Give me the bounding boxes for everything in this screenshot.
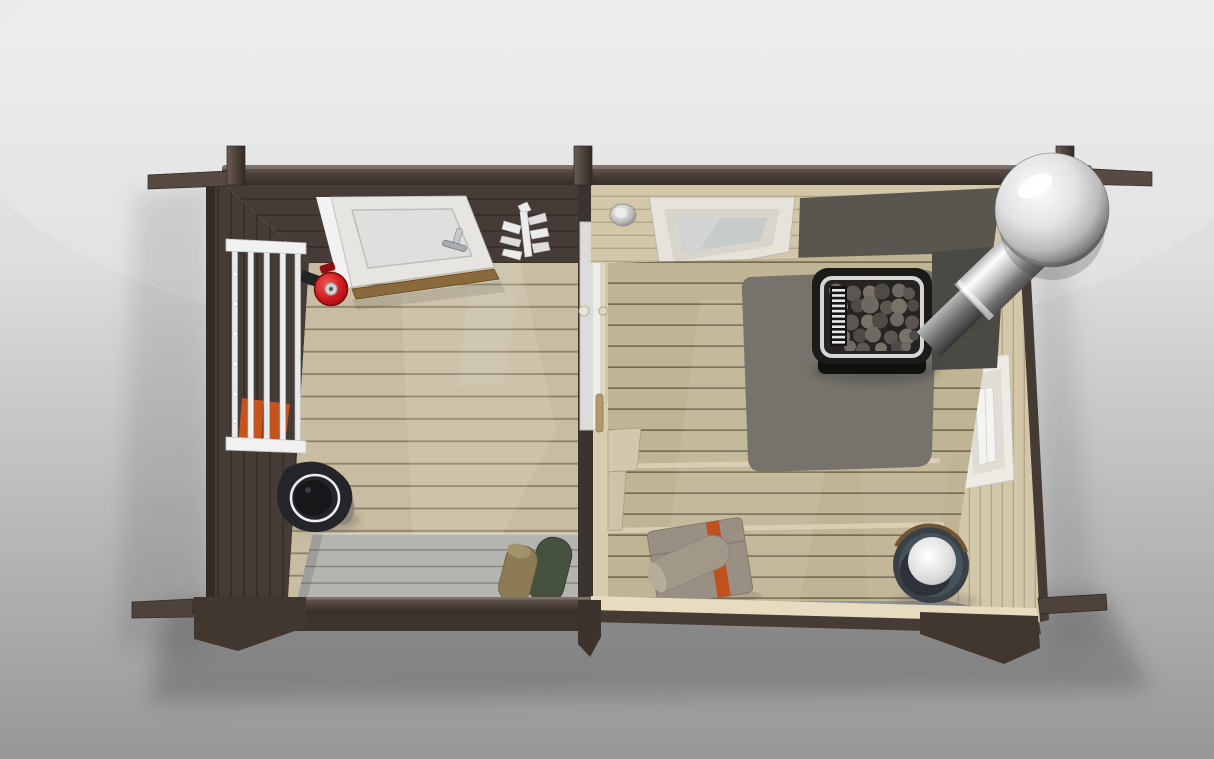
bench-tier-end bbox=[608, 428, 641, 472]
top-beam-shade bbox=[222, 181, 1092, 185]
heater-stone bbox=[861, 296, 879, 314]
heater-stone bbox=[891, 299, 907, 315]
heater-stone bbox=[905, 316, 919, 330]
heater-stone bbox=[903, 288, 915, 300]
terrace-left-wall-edge bbox=[206, 184, 215, 599]
heater-stone bbox=[901, 342, 911, 352]
vent-slat bbox=[832, 315, 845, 318]
bucket-highlight bbox=[305, 487, 311, 493]
pail-interior bbox=[908, 537, 956, 585]
vent-slat bbox=[832, 320, 845, 323]
vent-slat bbox=[832, 294, 845, 297]
heater-stone bbox=[874, 284, 890, 300]
corner-post-left bbox=[227, 146, 245, 185]
ceiling-light bbox=[610, 204, 636, 226]
sauna-room bbox=[591, 184, 1049, 634]
glass-door-handle bbox=[596, 394, 603, 432]
sauna-heater bbox=[812, 268, 932, 374]
vent-slat bbox=[832, 331, 845, 334]
heater-stone bbox=[872, 313, 888, 329]
log-end-left bbox=[132, 599, 193, 618]
vent-slat bbox=[832, 289, 845, 292]
vent-slat bbox=[832, 305, 845, 308]
sauna-topdown-render bbox=[0, 0, 1214, 759]
heater-stone bbox=[853, 329, 867, 343]
glass-door-knob-sauna-side bbox=[599, 307, 607, 315]
vent-slat bbox=[832, 341, 845, 344]
heater-stone bbox=[890, 313, 904, 327]
heater-stone bbox=[865, 327, 881, 343]
render-canvas bbox=[0, 0, 1214, 759]
terrace-bench bbox=[297, 533, 591, 606]
bucket-interior bbox=[294, 480, 332, 516]
heater-vent-grille bbox=[830, 286, 847, 346]
glass-door-knob bbox=[579, 306, 589, 316]
top-beam-highlight bbox=[222, 165, 1092, 169]
vent-slat bbox=[832, 299, 845, 302]
log-end-right bbox=[1038, 594, 1107, 614]
terrace-room bbox=[206, 184, 591, 606]
extinguisher-pin bbox=[329, 287, 333, 291]
vent-slat bbox=[832, 310, 845, 313]
bench-front-highlight bbox=[313, 533, 591, 535]
vent-slat bbox=[832, 325, 845, 328]
corner-post-mid bbox=[574, 146, 592, 185]
sauna-building bbox=[132, 146, 1152, 664]
heater-stone bbox=[907, 300, 919, 312]
vent-slat bbox=[832, 336, 845, 339]
